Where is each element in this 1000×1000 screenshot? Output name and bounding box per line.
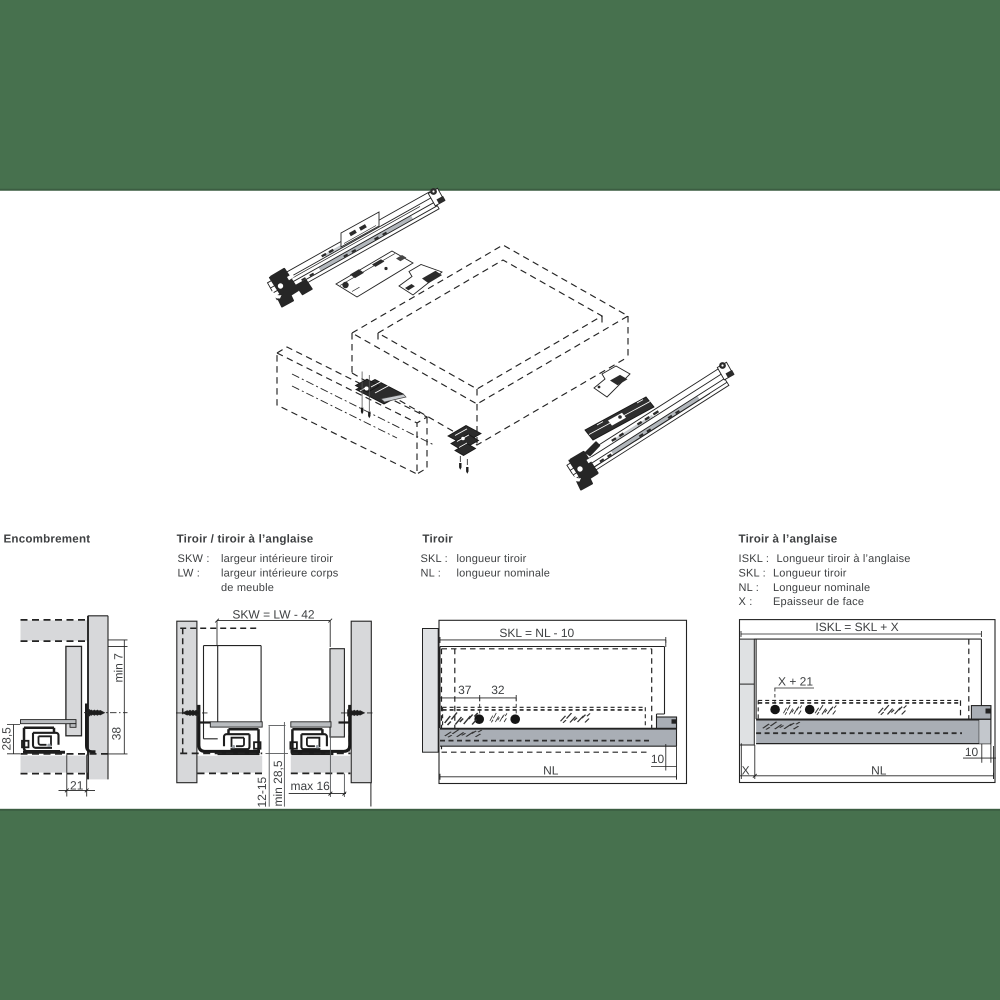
- svg-text:longueur tiroir: longueur tiroir: [457, 553, 527, 565]
- svg-text:SKL :: SKL :: [739, 567, 766, 579]
- svg-text:NL: NL: [543, 763, 559, 777]
- svg-text:37: 37: [458, 683, 472, 697]
- svg-text:ISKL :: ISKL :: [739, 553, 770, 565]
- svg-text:X: X: [742, 764, 750, 778]
- svg-text:SKL = NL - 10: SKL = NL - 10: [499, 626, 574, 640]
- svg-text:28,5: 28,5: [0, 727, 13, 751]
- svg-text:NL: NL: [871, 764, 887, 778]
- svg-text:de meuble: de meuble: [221, 582, 274, 594]
- svg-text:21: 21: [70, 778, 84, 792]
- svg-text:min 7: min 7: [111, 653, 125, 683]
- svg-text:Longueur nominale: Longueur nominale: [773, 582, 870, 594]
- svg-text:NL :: NL :: [739, 582, 760, 594]
- svg-text:largeur intérieure corps: largeur intérieure corps: [221, 567, 339, 579]
- svg-text:min 28,5: min 28,5: [271, 760, 285, 806]
- svg-text:38: 38: [110, 727, 124, 741]
- svg-text:Encombrement: Encombrement: [4, 533, 91, 546]
- svg-text:NL :: NL :: [421, 567, 442, 579]
- svg-text:X :: X :: [739, 596, 753, 608]
- svg-text:Tiroir / tiroir à l’anglaise: Tiroir / tiroir à l’anglaise: [177, 533, 314, 546]
- svg-text:10: 10: [965, 745, 979, 759]
- svg-text:ISKL = SKL + X: ISKL = SKL + X: [815, 620, 898, 634]
- svg-text:Longueur tiroir: Longueur tiroir: [773, 567, 847, 579]
- svg-text:12-15: 12-15: [255, 776, 269, 807]
- svg-text:X + 21: X + 21: [778, 674, 813, 688]
- svg-text:10: 10: [651, 752, 665, 766]
- svg-text:largeur intérieure tiroir: largeur intérieure tiroir: [221, 553, 333, 565]
- svg-text:32: 32: [491, 683, 505, 697]
- svg-text:SKL :: SKL :: [421, 553, 448, 565]
- svg-text:Tiroir à l’anglaise: Tiroir à l’anglaise: [739, 533, 838, 546]
- svg-text:Epaisseur de face: Epaisseur de face: [773, 596, 864, 608]
- svg-text:SKW :: SKW :: [178, 553, 210, 565]
- svg-text:SKW = LW - 42: SKW = LW - 42: [232, 607, 314, 621]
- svg-text:max 16: max 16: [291, 779, 331, 793]
- svg-text:LW :: LW :: [178, 567, 201, 579]
- svg-text:longueur nominale: longueur nominale: [457, 567, 551, 579]
- svg-text:Longueur tiroir à l’anglaise: Longueur tiroir à l’anglaise: [777, 553, 911, 565]
- svg-text:Tiroir: Tiroir: [422, 533, 453, 546]
